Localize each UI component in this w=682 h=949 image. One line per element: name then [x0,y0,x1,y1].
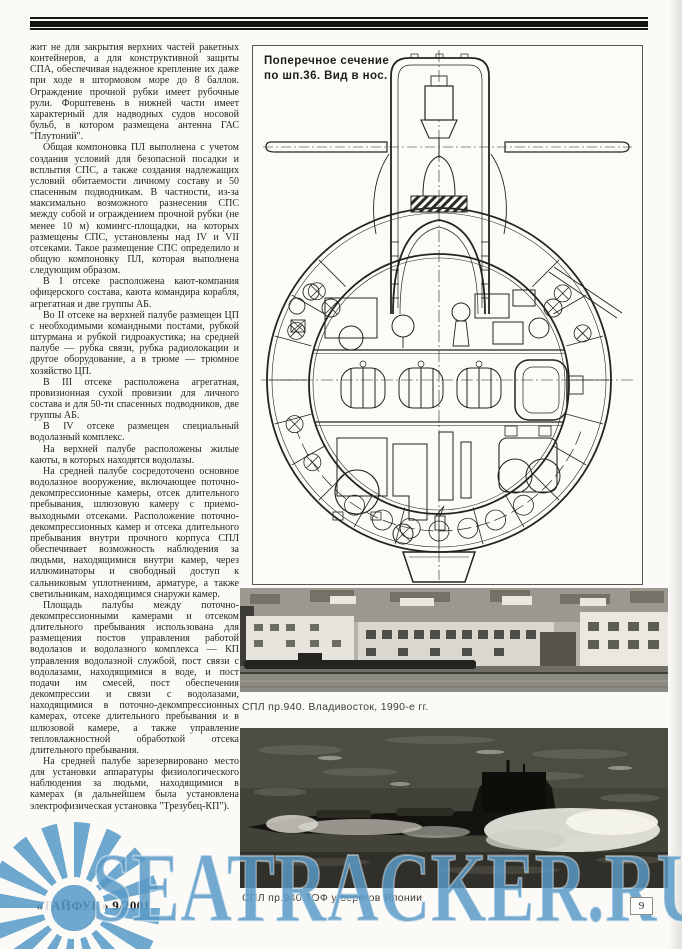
figure-caption-line2: по шп.36. Вид в нос. [264,70,388,82]
header-rule-thick [30,21,648,27]
magazine-footer: «ТАЙФУН» 9/2001 [36,898,150,914]
photo-caption-vladivostok: СПЛ пр.940. Владивосток, 1990-е гг. [242,701,429,713]
paragraph: жит не для закрытия верхних частей ракет… [30,42,239,142]
magazine-page: жит не для закрытия верхних частей ракет… [0,0,682,949]
paragraph: На средней палубе сосредоточено основное… [30,466,239,600]
paragraph: В IV отсеке размещен специальный водолаз… [30,421,239,443]
cross-section-drawing [253,46,642,584]
header-rule-thin-bottom [30,28,648,30]
paragraph: В I отсеке расположена кают-компания офи… [30,276,239,309]
sun-logo-icon [0,822,160,949]
paragraph: В III отсеке расположена агрегатная, про… [30,377,239,422]
header-rule-thin-top [30,17,648,19]
cross-section-figure: Поперечное сечение по шп.36. Вид в нос. [252,45,643,585]
photo-caption-japan: СПЛ пр.940 ТОФ у берегов Японии [242,892,422,904]
figure-caption-line1: Поперечное сечение [264,55,389,67]
paragraph: На верхней палубе расположены жилые кают… [30,444,239,466]
photo-sea-japan [240,728,668,888]
paragraph: Общая компоновка ПЛ выполнена с учетом с… [30,142,239,276]
paragraph: Во II отсеке на верхней палубе размещен … [30,310,239,377]
article-column: жит не для закрытия верхних частей ракет… [30,42,239,812]
scan-edge-shadow [668,0,682,949]
photo-vladivostok [240,588,668,692]
figure-caption: Поперечное сечение по шп.36. Вид в нос. [264,54,389,84]
paragraph: Площадь палубы между поточно-декомпресси… [30,600,239,756]
page-number: 9 [630,897,653,915]
header-rule [30,17,648,30]
paragraph: На средней палубе зарезервировано место … [30,756,239,812]
